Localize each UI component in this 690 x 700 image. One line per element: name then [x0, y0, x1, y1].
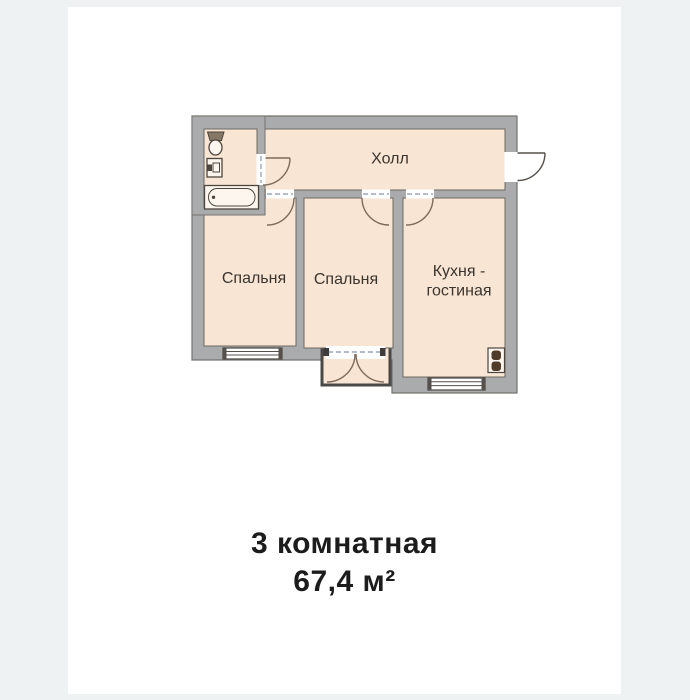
kitchen-label-line-1: Кухня - — [433, 263, 486, 280]
hall-label: Холл — [371, 151, 409, 168]
door-arc-entrance — [518, 153, 546, 181]
bedroom-2-label: Спальня — [314, 271, 378, 288]
bedroom-1-label: Спальня — [222, 270, 286, 287]
stove-icon — [488, 348, 505, 373]
door-opening-bedroom-2 — [362, 190, 390, 199]
balcony-hinge-left — [324, 348, 330, 356]
caption-area: 67,4 м² — [68, 563, 621, 601]
bathtub-icon — [205, 186, 259, 210]
window-bedroom-1 — [223, 348, 282, 359]
door-opening-entrance — [505, 152, 519, 182]
sink-icon — [207, 159, 222, 178]
kitchen-label-line-2: гостиная — [426, 283, 491, 300]
door-opening-bathroom — [257, 154, 266, 185]
door-opening-bedroom-1 — [266, 190, 294, 199]
window-kitchen — [428, 378, 485, 390]
floor-plan-drawing: Холл Спальня Спальня Кухня - гостиная — [68, 7, 621, 477]
balcony-hinge-right — [380, 348, 386, 356]
floor-plan-card: Холл Спальня Спальня Кухня - гостиная 3 … — [68, 7, 621, 694]
caption-room-count: 3 комнатная — [68, 525, 621, 563]
door-opening-kitchen — [406, 190, 434, 199]
toilet-icon — [208, 132, 225, 155]
plan-caption: 3 комнатная 67,4 м² — [68, 525, 621, 601]
